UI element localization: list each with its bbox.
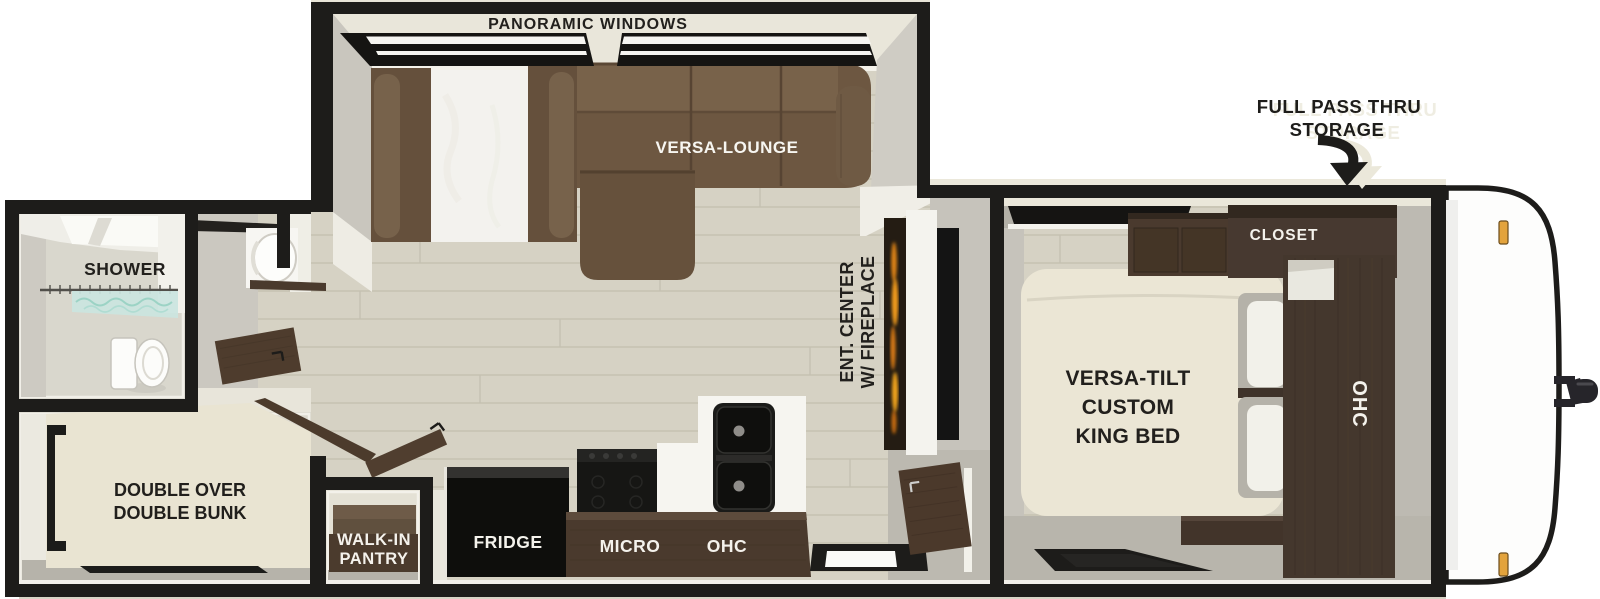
svg-text:CLOSET: CLOSET (1250, 227, 1319, 244)
svg-text:VERSA-LOUNGE: VERSA-LOUNGE (656, 138, 799, 157)
svg-text:ENT. CENTER: ENT. CENTER (837, 261, 857, 382)
svg-text:W/ FIREPLACE: W/ FIREPLACE (858, 256, 878, 389)
svg-text:FULL PASS THRU: FULL PASS THRU (1257, 96, 1422, 117)
svg-text:STORAGE: STORAGE (1290, 119, 1385, 140)
svg-text:OHC: OHC (1348, 380, 1370, 427)
svg-text:CUSTOM: CUSTOM (1082, 396, 1174, 419)
svg-text:VERSA-TILT: VERSA-TILT (1065, 367, 1190, 390)
svg-text:SHOWER: SHOWER (84, 259, 166, 279)
svg-text:OHC: OHC (707, 536, 747, 556)
svg-text:PANORAMIC WINDOWS: PANORAMIC WINDOWS (488, 16, 688, 33)
svg-text:DOUBLE BUNK: DOUBLE BUNK (114, 503, 247, 523)
svg-text:WALK-IN: WALK-IN (337, 531, 411, 549)
svg-text:PANTRY: PANTRY (340, 550, 409, 568)
svg-text:MICRO: MICRO (600, 536, 661, 556)
svg-text:KING BED: KING BED (1075, 425, 1180, 448)
svg-text:FRIDGE: FRIDGE (473, 532, 542, 552)
svg-text:DOUBLE OVER: DOUBLE OVER (114, 480, 246, 500)
